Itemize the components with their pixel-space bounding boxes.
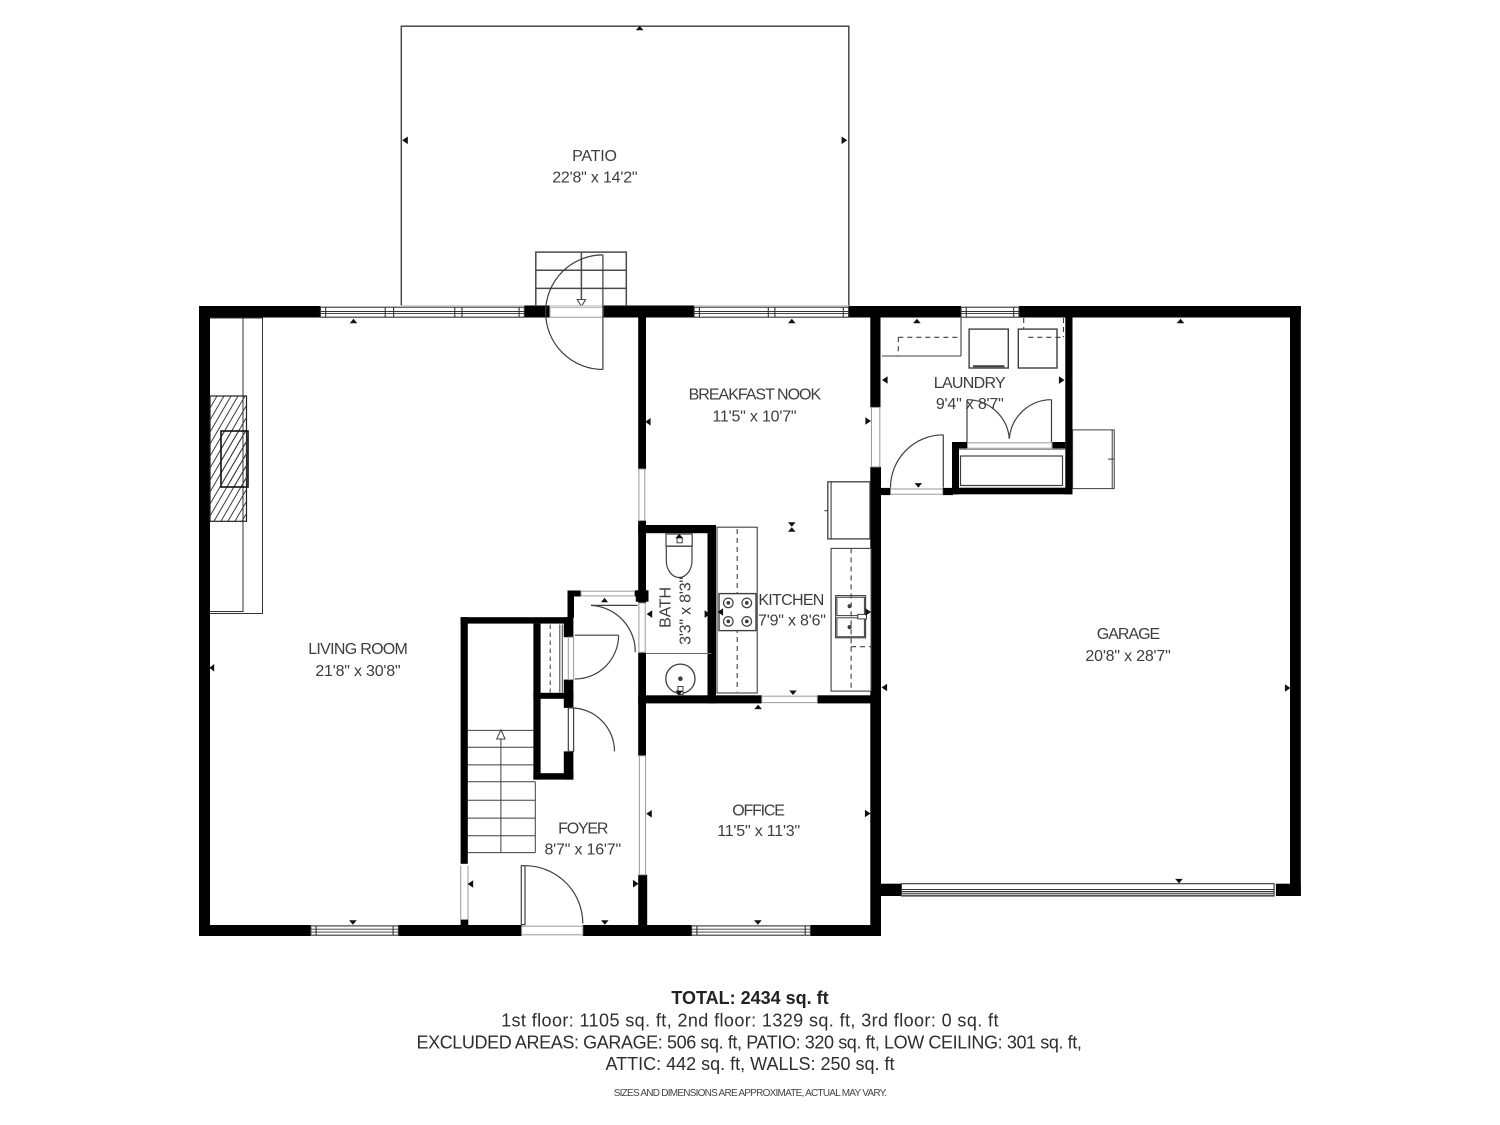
- svg-text:PATIO: PATIO: [572, 148, 617, 165]
- svg-text:20'8" x 28'7": 20'8" x 28'7": [1085, 648, 1170, 665]
- svg-text:BATH: BATH: [658, 587, 675, 628]
- svg-text:OFFICE: OFFICE: [732, 803, 784, 820]
- svg-text:KITCHEN: KITCHEN: [758, 592, 823, 609]
- svg-text:EXCLUDED AREAS: GARAGE: 506 sq: EXCLUDED AREAS: GARAGE: 506 sq. ft, PATI…: [417, 1033, 1082, 1053]
- svg-text:BREAKFAST NOOK: BREAKFAST NOOK: [689, 387, 822, 404]
- svg-text:1st floor: 1105 sq. ft, 2nd fl: 1st floor: 1105 sq. ft, 2nd floor: 1329 …: [501, 1011, 999, 1031]
- svg-text:8'7" x 16'7": 8'7" x 16'7": [544, 842, 620, 859]
- svg-text:GARAGE: GARAGE: [1097, 626, 1160, 643]
- svg-text:LAUNDRY: LAUNDRY: [934, 375, 1006, 392]
- svg-text:21'8" x 30'8": 21'8" x 30'8": [315, 663, 400, 680]
- svg-text:TOTAL: 2434 sq. ft: TOTAL: 2434 sq. ft: [671, 988, 828, 1008]
- svg-text:9'4" x 8'7": 9'4" x 8'7": [936, 396, 1004, 413]
- svg-text:LIVING ROOM: LIVING ROOM: [308, 641, 407, 658]
- svg-text:FOYER: FOYER: [558, 821, 608, 838]
- svg-text:SIZES AND DIMENSIONS ARE APPRO: SIZES AND DIMENSIONS ARE APPROXIMATE, AC…: [614, 1088, 887, 1099]
- svg-text:11'5" x 11'3": 11'5" x 11'3": [717, 823, 800, 840]
- svg-text:ATTIC: 442 sq. ft, WALLS: 250: ATTIC: 442 sq. ft, WALLS: 250 sq. ft: [605, 1054, 894, 1074]
- svg-text:22'8" x 14'2": 22'8" x 14'2": [552, 169, 637, 186]
- svg-text:7'9" x 8'6": 7'9" x 8'6": [758, 612, 826, 629]
- svg-text:11'5" x 10'7": 11'5" x 10'7": [712, 409, 796, 426]
- svg-text:3'3" x 8'3": 3'3" x 8'3": [677, 577, 694, 645]
